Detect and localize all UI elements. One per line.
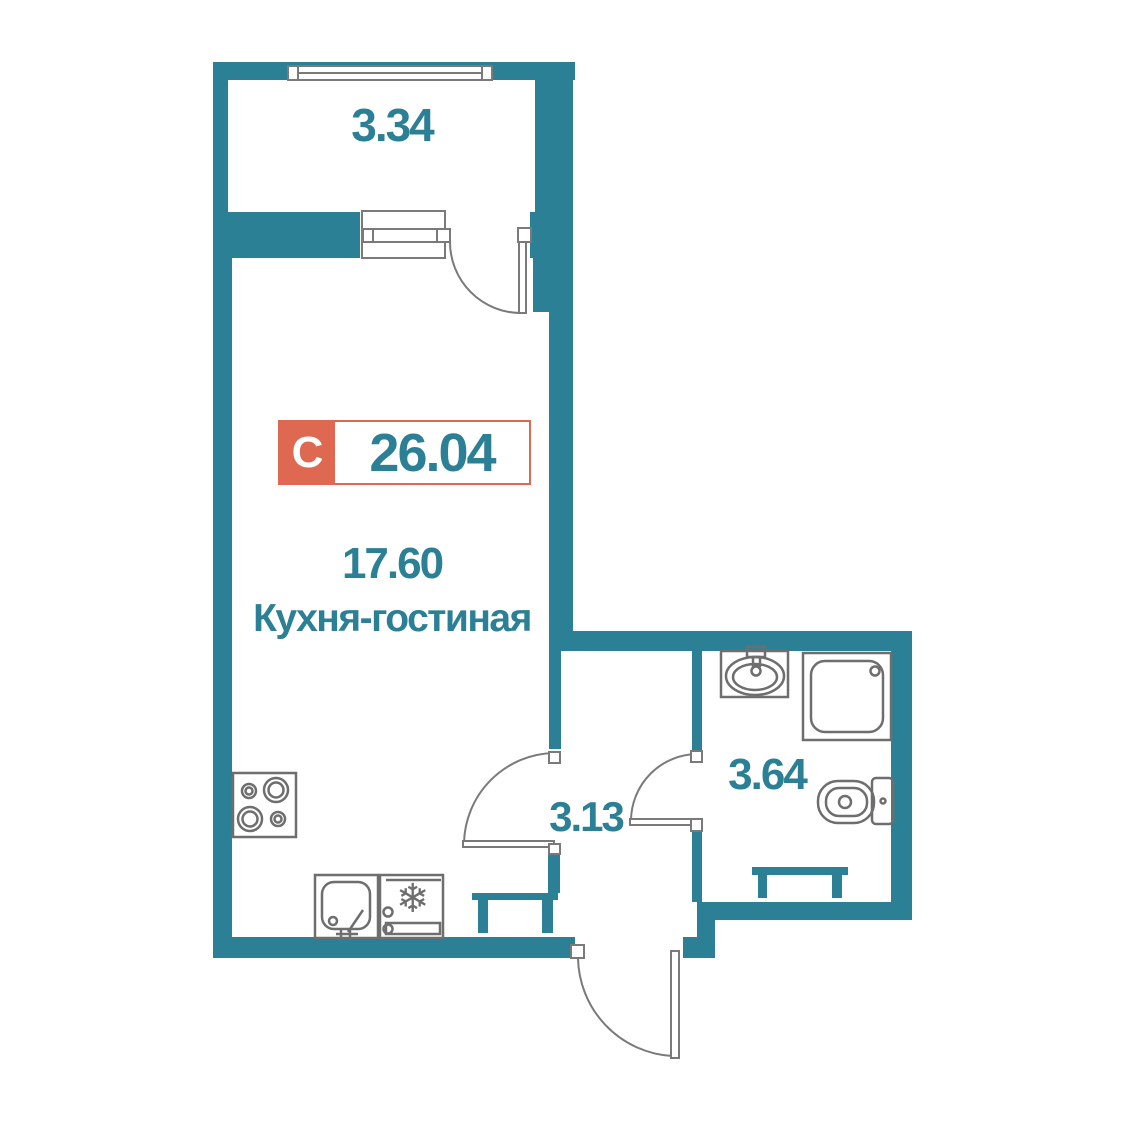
kitchen-sink-icon [315,875,378,939]
balcony-area-label: 3.34 [292,101,492,149]
wall-segment [549,631,912,651]
toilet-icon [818,778,893,824]
plan-type-badge: С 26.04 [278,420,531,485]
door-post [691,751,702,762]
wall-segment [535,62,573,213]
door-swing-arc [578,958,672,1056]
door-swing-arc [631,754,697,820]
stove-icon [233,773,296,837]
door-post [518,228,531,242]
wall-segment [213,212,360,258]
apartment-type-letter: С [280,422,335,483]
wall-segment [891,631,912,920]
door-leaf [630,819,693,825]
shower-icon [803,653,891,740]
kitchen-area-label: 17.60 [282,541,502,587]
bathroom-area-label: 3.64 [707,752,827,798]
floor-plan-drawing: ❄ [0,0,1124,1124]
wall-segment [692,651,702,751]
hallway-area-label: 3.13 [536,795,636,839]
door-leaf [463,841,554,847]
door-leaf [671,951,679,1058]
wall-segment [548,855,560,893]
balcony-door-window [362,211,450,258]
shaft-post [542,900,553,933]
door-swing-arc [450,242,521,313]
wall-segment [692,832,702,902]
door-post [571,945,584,958]
balcony-door [450,228,531,313]
shaft-post [758,875,767,898]
wall-segment [213,937,575,958]
wall-segment [530,212,573,258]
shaft-band [472,893,558,900]
door-post [549,844,560,854]
kitchen-room-name: Кухня-гостиная [242,597,542,641]
bathroom-door [630,751,702,831]
wall-segment [213,62,228,213]
bathroom-vent-shaft [752,867,848,898]
washbasin-icon [721,647,788,697]
entrance-door [571,945,679,1058]
snowflake-icon: ❄ [396,876,430,922]
fridge-icon: ❄ [380,875,443,938]
door-leaf [519,235,526,313]
shaft-post [478,900,488,933]
door-post [549,752,560,763]
wall-segment [549,258,573,633]
shaft-post [832,875,842,898]
wall-segment [213,212,232,958]
wall-segment [683,937,715,958]
floor-plan: ❄ 3.34 С 26.04 17.60 Кухня-гостиная [0,0,1124,1124]
wall-segment [549,651,561,749]
door-post [691,819,702,831]
shaft-band [752,867,848,875]
kitchen-vent-shaft [472,893,558,933]
total-area-value: 26.04 [335,422,529,483]
wall-segment [697,902,912,920]
balcony-window [288,66,492,80]
